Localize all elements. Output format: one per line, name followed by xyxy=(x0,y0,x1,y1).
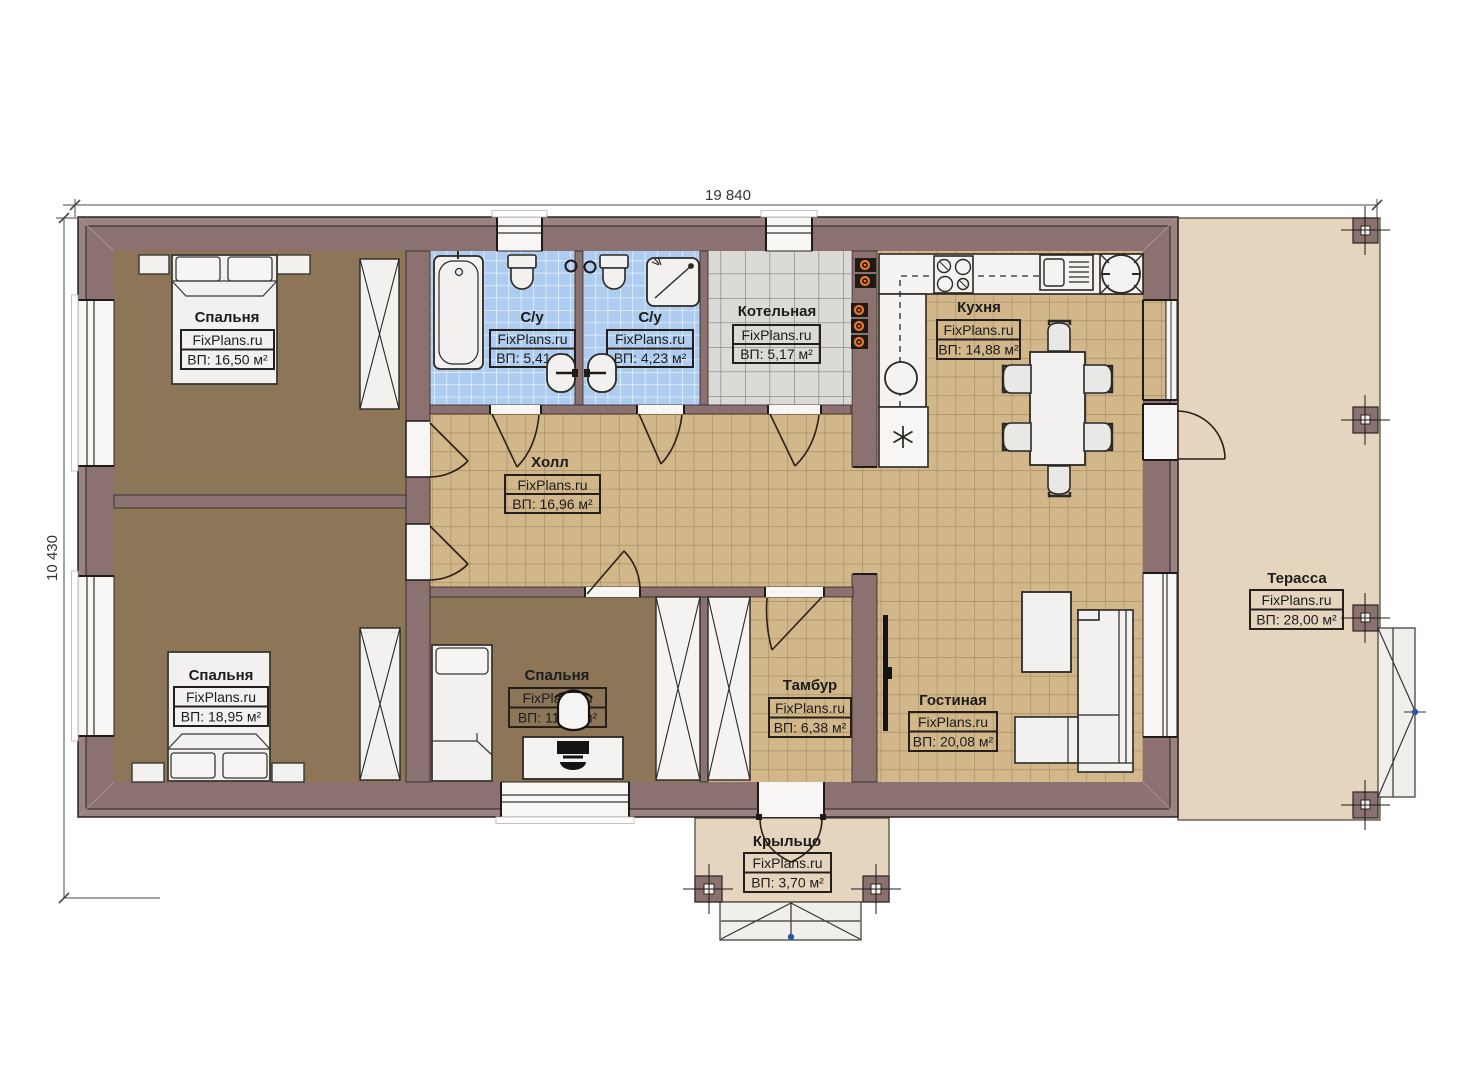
svg-text:ВП: 6,38 м²: ВП: 6,38 м² xyxy=(774,720,847,736)
svg-text:FixPlans.ru: FixPlans.ru xyxy=(186,689,256,705)
svg-text:FixPlans.ru: FixPlans.ru xyxy=(918,714,988,730)
svg-text:FixPlans.ru: FixPlans.ru xyxy=(192,332,262,348)
svg-text:ВП: 4,23 м²: ВП: 4,23 м² xyxy=(614,350,687,366)
svg-text:FixPlans.ru: FixPlans.ru xyxy=(775,700,845,716)
svg-text:FixPlans.ru: FixPlans.ru xyxy=(752,855,822,871)
svg-text:Тамбур: Тамбур xyxy=(783,677,837,694)
svg-text:10 430: 10 430 xyxy=(44,535,61,581)
svg-text:ВП: 18,95 м²: ВП: 18,95 м² xyxy=(181,709,262,725)
svg-text:FixPlans.ru: FixPlans.ru xyxy=(497,331,567,347)
svg-text:С/у: С/у xyxy=(520,309,544,326)
svg-text:FixPlans.ru: FixPlans.ru xyxy=(741,327,811,343)
svg-text:FixPlans.ru: FixPlans.ru xyxy=(1261,592,1331,608)
svg-text:FixPlans.ru: FixPlans.ru xyxy=(615,331,685,347)
svg-text:FixPlans.ru: FixPlans.ru xyxy=(943,322,1013,338)
svg-text:Кухня: Кухня xyxy=(957,299,1001,316)
svg-text:Спальня: Спальня xyxy=(525,667,590,684)
svg-text:Спальня: Спальня xyxy=(195,309,260,326)
svg-text:FixPlans.ru: FixPlans.ru xyxy=(517,477,587,493)
svg-text:Холл: Холл xyxy=(531,454,569,471)
svg-text:ВП: 14,88 м²: ВП: 14,88 м² xyxy=(938,342,1019,358)
svg-text:Котельная: Котельная xyxy=(738,303,817,320)
svg-text:ВП: 3,70 м²: ВП: 3,70 м² xyxy=(751,875,824,891)
svg-text:ВП: 28,00 м²: ВП: 28,00 м² xyxy=(1256,612,1337,628)
svg-text:Гостиная: Гостиная xyxy=(919,692,987,709)
svg-text:Терасса: Терасса xyxy=(1267,570,1327,587)
svg-text:С/у: С/у xyxy=(638,309,662,326)
svg-text:ВП: 20,08 м²: ВП: 20,08 м² xyxy=(913,734,994,750)
svg-text:ВП: 16,96 м²: ВП: 16,96 м² xyxy=(512,496,593,512)
svg-text:19 840: 19 840 xyxy=(705,187,751,204)
svg-text:Спальня: Спальня xyxy=(189,667,254,684)
svg-text:Крыльцо: Крыльцо xyxy=(753,833,821,850)
svg-text:ВП: 5,17 м²: ВП: 5,17 м² xyxy=(740,346,813,362)
svg-text:ВП: 16,50 м²: ВП: 16,50 м² xyxy=(187,352,268,368)
